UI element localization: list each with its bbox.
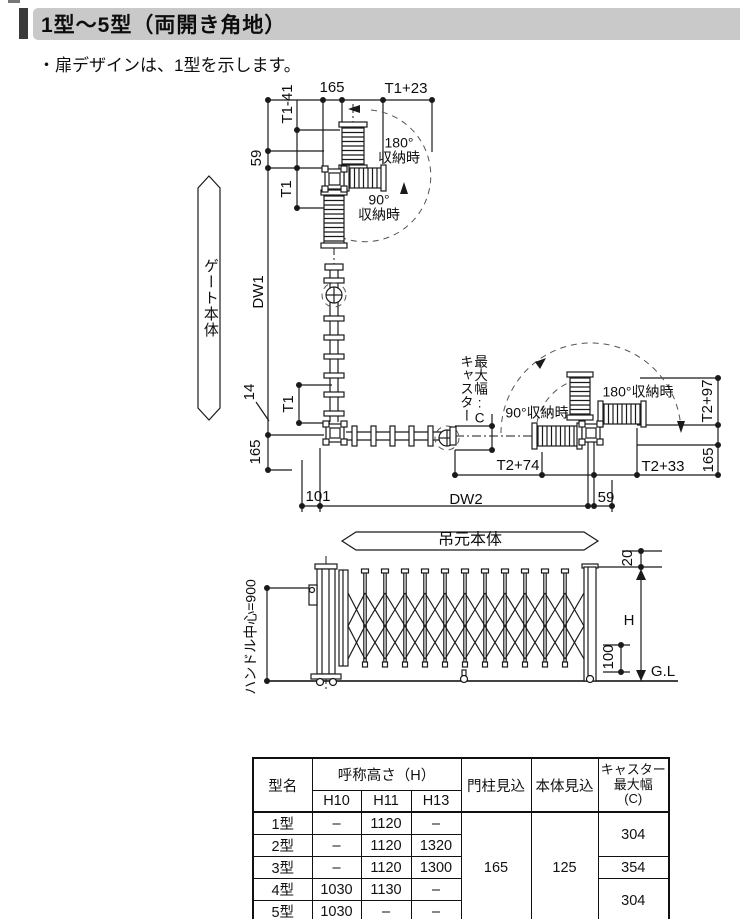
- cell-caster-1-2: 304: [598, 812, 669, 857]
- dim-101: 101: [305, 489, 330, 505]
- col-caster-width: キャスター 最大幅 (C): [598, 758, 669, 812]
- spec-table: 型名 呼称高さ（H） 門柱見込 本体見込 キャスター 最大幅 (C) H10 H…: [252, 757, 670, 919]
- spec-table-wrap: 型名 呼称高さ（H） 門柱見込 本体見込 キャスター 最大幅 (C) H10 H…: [252, 757, 670, 919]
- cell-h13: –: [411, 812, 461, 835]
- cell-post-depth: 165: [461, 812, 531, 919]
- cell-body-depth: 125: [531, 812, 598, 919]
- col-h11: H11: [361, 790, 411, 812]
- label-caster-max-width: キャスター 最大幅:C: [458, 355, 486, 426]
- label-ground-level: G.L: [651, 664, 675, 680]
- dim-t2-plus-97: T2+97: [700, 380, 716, 423]
- cell-model: 4型: [253, 879, 312, 901]
- dim-59-left: 59: [249, 150, 265, 167]
- cell-h10: 1030: [312, 901, 361, 919]
- catalog-page: 1型～5型（両開き角地） ・扉デザインは、1型を示します。 T1-41 165 …: [0, 0, 740, 919]
- cell-caster-3: 354: [598, 857, 669, 879]
- cell-h11: 1120: [361, 835, 411, 857]
- col-model: 型名: [253, 758, 312, 812]
- dim-dw1: DW1: [251, 275, 267, 308]
- cell-h11: 1120: [361, 857, 411, 879]
- dim-100: 100: [601, 644, 617, 669]
- dim-dw2: DW2: [449, 492, 482, 508]
- cell-h13: –: [411, 879, 461, 901]
- cell-h11: 1130: [361, 879, 411, 901]
- col-h13: H13: [411, 790, 461, 812]
- col-body-depth: 本体見込: [531, 758, 598, 812]
- label-stored-90-top: 90° 収納時: [358, 192, 400, 221]
- col-height-group: 呼称高さ（H）: [312, 758, 461, 790]
- cell-caster-4-5: 304: [598, 879, 669, 919]
- col-h10: H10: [312, 790, 361, 812]
- dim-height-h: H: [624, 613, 635, 629]
- cell-model: 2型: [253, 835, 312, 857]
- banner-hinge-body: 吊元本体: [438, 533, 502, 550]
- dim-t1-lower: T1: [281, 395, 297, 413]
- cell-h13: 1300: [411, 857, 461, 879]
- cell-h11: 1120: [361, 812, 411, 835]
- dim-handle-center: ハンドル中心=900: [244, 579, 259, 695]
- cell-h11: –: [361, 901, 411, 919]
- label-stored-180-right: 180°収納時: [603, 385, 674, 400]
- dim-t2-plus-33: T2+33: [642, 459, 685, 475]
- cell-model: 1型: [253, 812, 312, 835]
- dim-165-bottom-left: 165: [248, 439, 264, 464]
- table-row: 1型 – 1120 – 165 125 304: [253, 812, 669, 835]
- cell-h10: –: [312, 835, 361, 857]
- cell-h10: –: [312, 857, 361, 879]
- dim-t1-plus-23: T1+23: [385, 81, 428, 97]
- cell-h13: 1320: [411, 835, 461, 857]
- label-stored-90-right: 90°収納時: [505, 406, 568, 421]
- col-post-depth: 門柱見込: [461, 758, 531, 812]
- dim-20: 20: [620, 550, 636, 567]
- cell-h13: –: [411, 901, 461, 919]
- dim-t1-minus-41: T1-41: [280, 84, 296, 123]
- cell-model: 3型: [253, 857, 312, 879]
- label-stored-180-top: 180° 収納時: [378, 135, 420, 164]
- cell-h10: 1030: [312, 879, 361, 901]
- cell-model: 5型: [253, 901, 312, 919]
- dim-14: 14: [242, 384, 258, 401]
- dim-59-bottom: 59: [598, 490, 615, 506]
- cell-h10: –: [312, 812, 361, 835]
- dim-t2-plus-74: T2+74: [497, 458, 540, 474]
- dim-165-top: 165: [319, 80, 344, 96]
- banner-gate-body: ゲート本体: [202, 258, 218, 338]
- dim-165-right: 165: [701, 447, 717, 472]
- table-header-row-1: 型名 呼称高さ（H） 門柱見込 本体見込 キャスター 最大幅 (C): [253, 758, 669, 790]
- dim-t1-upper: T1: [279, 180, 295, 198]
